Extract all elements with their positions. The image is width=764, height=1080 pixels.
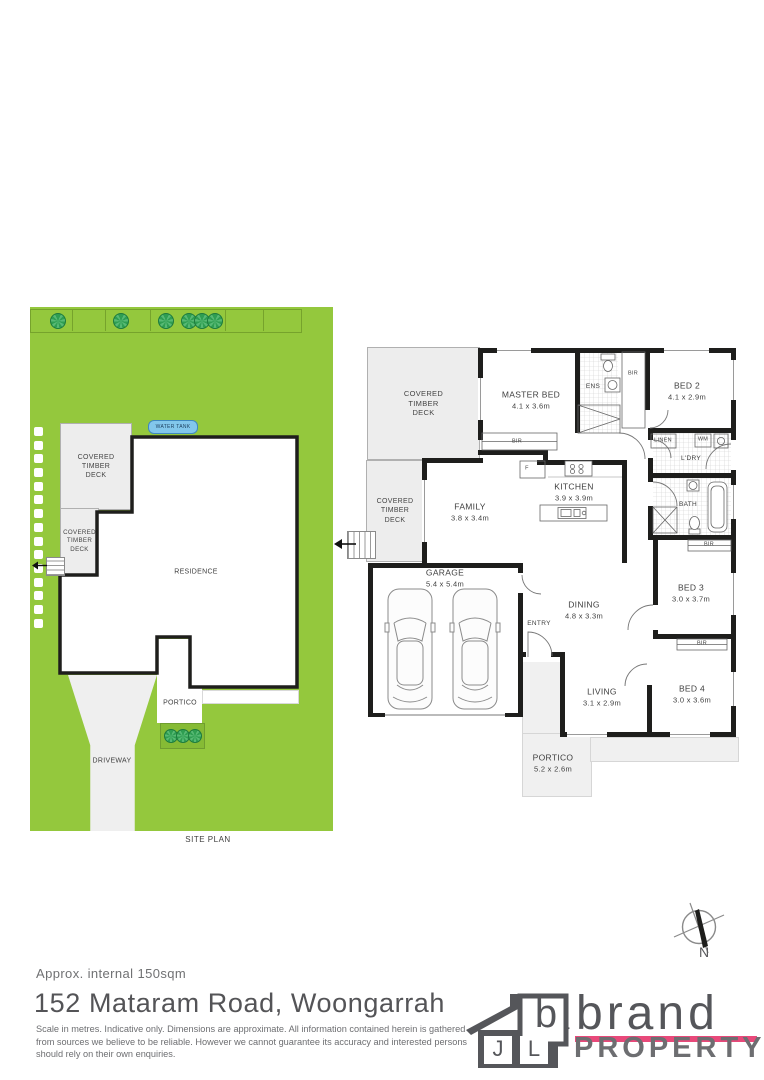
floor-plan: COVERED TIMBER DECK COVERED TIMBER DECK [355, 330, 764, 810]
room-name: FAMILY [451, 502, 489, 513]
logo-letter-j: J [484, 1036, 512, 1062]
bath-label: BATH [679, 501, 697, 509]
portico-garden-bed [160, 723, 205, 749]
site-steps [46, 557, 65, 576]
room-name: PORTICO [533, 753, 574, 764]
garage-cars [385, 589, 500, 709]
room-name: GARAGE [426, 568, 464, 579]
room-name: LIVING [583, 687, 621, 698]
room-dims: 3.9 x 3.9m [554, 493, 593, 502]
residence-walls [60, 437, 297, 687]
room-dims: 4.1 x 2.9m [668, 392, 706, 401]
site-plan: COVERED TIMBER DECK COVERED TIMBER DECK … [30, 307, 333, 831]
water-tank: WATER TANK [148, 420, 198, 434]
fridge-label: F [525, 466, 529, 473]
room-portico: PORTICO 5.2 x 2.6m [533, 753, 574, 774]
room-living: LIVING 3.1 x 2.9m [583, 687, 621, 708]
room-dims: 5.2 x 2.6m [533, 764, 574, 773]
room-bed2: BED 2 4.1 x 2.9m [668, 381, 706, 402]
room-garage: GARAGE 5.4 x 5.4m [426, 568, 464, 589]
logo-letter-l: L [520, 1036, 548, 1062]
floorplan-page: COVERED TIMBER DECK COVERED TIMBER DECK … [0, 0, 764, 1080]
room-dims: 3.8 x 3.4m [451, 513, 489, 522]
ens-label: ENS [586, 383, 600, 391]
room-dims: 3.0 x 3.6m [673, 695, 711, 704]
disclaimer-text: Scale in metres. Indicative only. Dimens… [36, 1023, 482, 1061]
bir-label: BIR [697, 641, 707, 648]
water-tank-label: WATER TANK [156, 424, 191, 430]
address-title: 152 Mataram Road, Woongarrah [34, 988, 445, 1019]
driveway-label: DRIVEWAY [93, 758, 132, 767]
room-dims: 4.1 x 3.6m [502, 401, 560, 410]
compass-north-label: N [694, 944, 714, 960]
room-name: KITCHEN [554, 482, 593, 493]
room-name: BED 3 [672, 583, 710, 594]
room-kitchen: KITCHEN 3.9 x 3.9m [554, 482, 593, 503]
room-dims: 4.8 x 3.3m [565, 611, 603, 620]
room-name: DINING [565, 600, 603, 611]
wm-label: WM [698, 437, 708, 444]
room-family: FAMILY 3.8 x 3.4m [451, 502, 489, 523]
room-master-bed: MASTER BED 4.1 x 3.6m [502, 390, 560, 411]
logo-property-word: PROPERTY [574, 1032, 764, 1065]
residence-label: RESIDENCE [174, 569, 218, 578]
room-dims: 3.1 x 2.9m [583, 698, 621, 707]
bir-label: BIR [704, 542, 714, 549]
entry-label: ENTRY [527, 620, 550, 628]
room-bed4: BED 4 3.0 x 3.6m [673, 684, 711, 705]
room-dining: DINING 4.8 x 3.3m [565, 600, 603, 621]
bir-label: BIR [512, 439, 522, 446]
room-name: MASTER BED [502, 390, 560, 401]
room-name: BED 2 [668, 381, 706, 392]
laundry-label: L'DRY [681, 455, 701, 463]
area-note: Approx. internal 150sqm [36, 966, 186, 981]
site-plan-caption: SITE PLAN [185, 835, 230, 845]
room-dims: 5.4 x 5.4m [426, 579, 464, 588]
logo-letter-b: b [524, 992, 568, 1037]
linen-label: LINEN [654, 438, 672, 445]
tree-icon [188, 729, 202, 743]
bir-label: BIR [628, 371, 638, 378]
room-bed3: BED 3 3.0 x 3.7m [672, 583, 710, 604]
room-dims: 3.0 x 3.7m [672, 594, 710, 603]
site-portico-label: PORTICO [163, 700, 197, 709]
room-name: BED 4 [673, 684, 711, 695]
exit-arrow-icon [32, 560, 48, 571]
